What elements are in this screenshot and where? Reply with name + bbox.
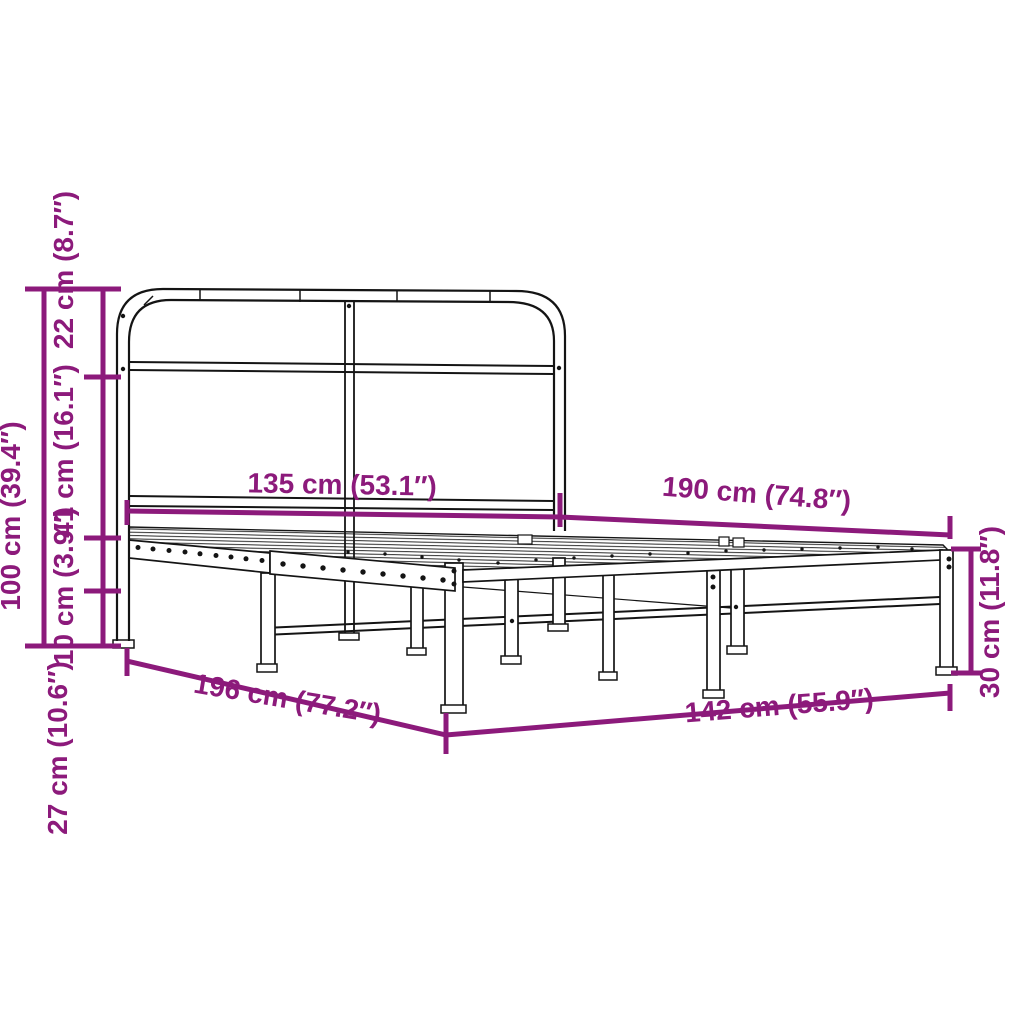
dim-label-total-height: 100 cm (39.4″) xyxy=(0,421,26,610)
dim-label-frame-rail: 10 cm (3.9″) xyxy=(48,507,79,665)
headboard-center-post xyxy=(345,301,354,633)
headboard xyxy=(117,289,565,641)
headboard-outer-tube xyxy=(117,289,565,641)
leg xyxy=(603,567,614,673)
dim-label-total-length: 196 cm (77.2″) xyxy=(192,668,384,730)
headboard-screws xyxy=(121,304,561,371)
stretcher-bar xyxy=(264,597,940,635)
dim-label-headboard-width: 135 cm (53.1″) xyxy=(247,467,437,501)
product-dimension-diagram: 100 cm (39.4″) 22 cm (8.7″) 41 cm (16.1″… xyxy=(0,0,1024,1024)
dimension-lines xyxy=(25,289,981,754)
leg xyxy=(411,585,423,649)
bed-frame-diagram: 100 cm (39.4″) 22 cm (8.7″) 41 cm (16.1″… xyxy=(0,0,1024,1024)
dim-label-headboard-top: 22 cm (8.7″) xyxy=(48,191,79,349)
leg xyxy=(261,573,275,665)
leg xyxy=(505,571,518,657)
dim-label-under-clearance: 27 cm (10.6″) xyxy=(42,661,73,835)
headboard-upper-rail xyxy=(129,362,554,374)
dim-label-sleeping-length: 190 cm (74.8″) xyxy=(661,471,852,517)
dim-label-foot-height: 30 cm (11.8″) xyxy=(974,526,1005,698)
